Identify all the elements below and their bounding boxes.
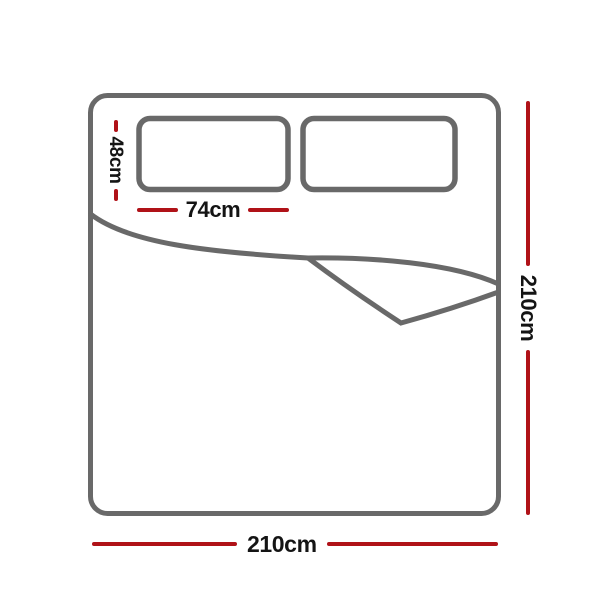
dimension-bed-length: 210cm — [513, 101, 543, 515]
dimension-tick — [114, 189, 118, 201]
bed-length-label: 210cm — [517, 275, 539, 342]
quilt-fold-flap — [308, 258, 499, 323]
pillow-right — [303, 119, 455, 190]
dimension-line — [526, 101, 530, 266]
quilt-drape-curve — [91, 214, 499, 284]
dimension-diagram: 48cm 74cm 210cm 210cm — [0, 0, 600, 600]
dimension-line — [137, 208, 178, 212]
pillow-left — [139, 119, 288, 190]
dimension-bed-width: 210cm — [92, 529, 498, 559]
dimension-pillow-width-row: 74cm — [137, 196, 289, 224]
dimension-line — [248, 208, 289, 212]
bed-outline — [91, 96, 499, 514]
dimension-bed-width-row: 210cm — [92, 529, 498, 559]
dimension-pillow-height-row: 48cm — [101, 121, 131, 199]
pillow-width-label: 74cm — [186, 199, 241, 221]
dimension-pillow-height: 48cm — [101, 121, 131, 199]
dimension-line — [92, 542, 237, 546]
pillow-height-label: 48cm — [107, 137, 126, 184]
dimension-line — [327, 542, 498, 546]
dimension-tick — [114, 120, 118, 132]
bed-width-label: 210cm — [247, 533, 317, 556]
dimension-pillow-width: 74cm — [137, 196, 289, 224]
dimension-line — [526, 350, 530, 515]
dimension-bed-length-row: 210cm — [513, 101, 543, 515]
bed-illustration — [0, 0, 600, 600]
